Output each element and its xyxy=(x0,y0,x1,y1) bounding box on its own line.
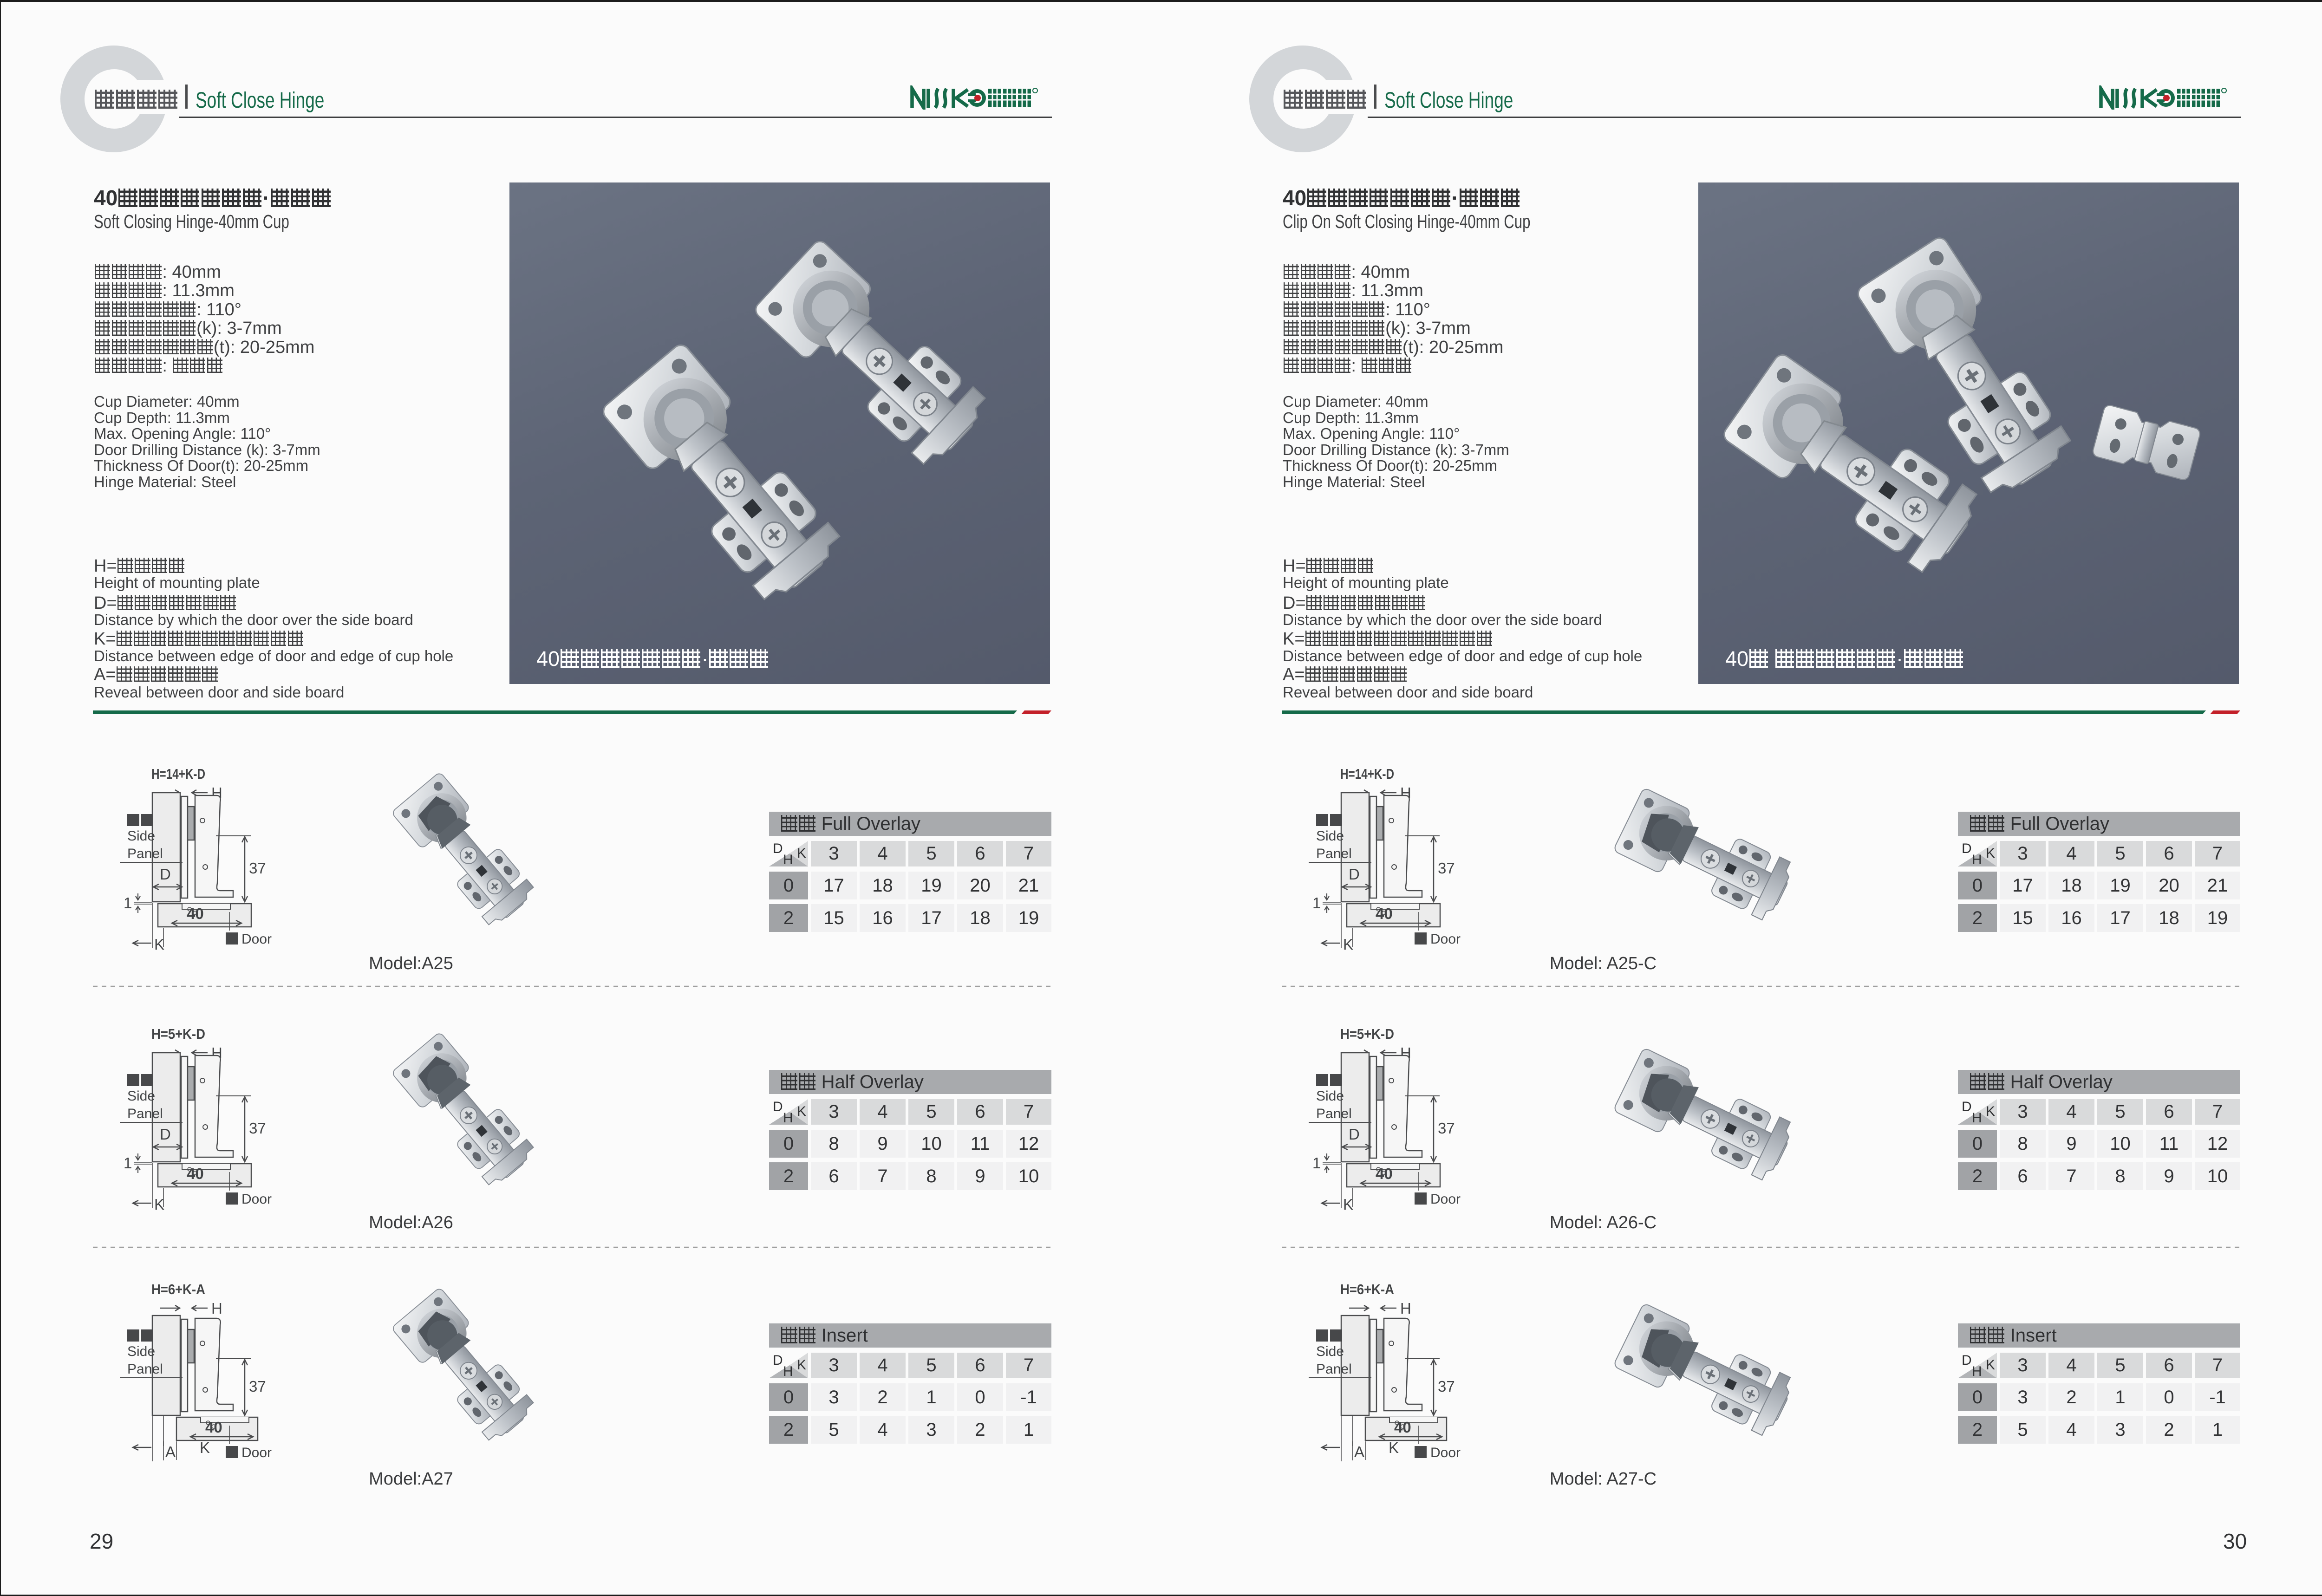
svg-text:D: D xyxy=(1962,1099,1972,1114)
svg-text:40: 40 xyxy=(205,1419,222,1436)
svg-text:H=14+K-D: H=14+K-D xyxy=(1340,766,1394,782)
svg-text:D: D xyxy=(1349,1126,1360,1143)
svg-text:Side: Side xyxy=(1316,828,1344,844)
svg-text:40: 40 xyxy=(1394,1419,1411,1436)
svg-text:Door: Door xyxy=(241,1192,272,1207)
svg-text:D: D xyxy=(773,1353,783,1368)
svg-text:37: 37 xyxy=(1438,1120,1455,1137)
svg-text:Panel: Panel xyxy=(127,1361,163,1377)
svg-text:Panel: Panel xyxy=(1316,1106,1352,1121)
svg-text:H: H xyxy=(1972,1110,1982,1125)
svg-text:H=6+K-A: H=6+K-A xyxy=(1340,1281,1394,1297)
svg-text:Panel: Panel xyxy=(1316,846,1352,861)
svg-text:H: H xyxy=(1400,1300,1411,1317)
svg-text:Panel: Panel xyxy=(1316,1361,1352,1377)
svg-text:H=6+K-A: H=6+K-A xyxy=(151,1281,205,1297)
svg-text:K: K xyxy=(1986,1104,1995,1119)
svg-text:H=5+K-D: H=5+K-D xyxy=(151,1026,205,1042)
svg-text:Door: Door xyxy=(241,932,272,947)
svg-text:Side: Side xyxy=(1316,1088,1344,1104)
svg-text:1: 1 xyxy=(124,894,132,912)
svg-text:40: 40 xyxy=(187,905,204,922)
svg-text:40: 40 xyxy=(1376,905,1393,922)
svg-text:Door: Door xyxy=(1430,1192,1461,1207)
svg-text:Door: Door xyxy=(1430,1445,1461,1460)
svg-text:37: 37 xyxy=(249,1120,266,1137)
svg-text:K: K xyxy=(1986,846,1995,861)
svg-text:D: D xyxy=(1962,1353,1972,1368)
svg-text:37: 37 xyxy=(1438,860,1455,877)
svg-text:H: H xyxy=(1972,852,1982,866)
svg-text:H: H xyxy=(783,852,793,866)
svg-text:K: K xyxy=(1986,1357,1995,1373)
svg-text:H: H xyxy=(783,1110,793,1125)
svg-text:Side: Side xyxy=(127,828,155,844)
svg-text:40: 40 xyxy=(1376,1165,1393,1182)
svg-text:40: 40 xyxy=(187,1165,204,1182)
svg-text:37: 37 xyxy=(249,1378,266,1395)
svg-text:37: 37 xyxy=(249,860,266,877)
svg-text:H=14+K-D: H=14+K-D xyxy=(151,766,205,782)
svg-text:Panel: Panel xyxy=(127,846,163,861)
svg-text:A: A xyxy=(165,1443,176,1460)
svg-text:Panel: Panel xyxy=(127,1106,163,1121)
svg-text:K: K xyxy=(154,936,164,953)
svg-text:A: A xyxy=(1354,1443,1364,1460)
svg-text:D: D xyxy=(773,841,783,856)
svg-text:H: H xyxy=(1972,1364,1982,1378)
svg-text:H: H xyxy=(783,1364,793,1378)
svg-text:K: K xyxy=(797,846,806,861)
svg-text:1: 1 xyxy=(1312,1154,1321,1172)
svg-text:Side: Side xyxy=(127,1344,155,1359)
svg-text:K: K xyxy=(797,1104,806,1119)
svg-text:Door: Door xyxy=(1430,932,1461,947)
svg-text:K: K xyxy=(154,1196,164,1213)
svg-text:37: 37 xyxy=(1438,1378,1455,1395)
svg-text:1: 1 xyxy=(124,1154,132,1172)
svg-text:H: H xyxy=(211,1300,222,1317)
svg-text:D: D xyxy=(160,1126,171,1143)
svg-text:Door: Door xyxy=(241,1445,272,1460)
svg-text:K: K xyxy=(797,1357,806,1373)
svg-text:K: K xyxy=(200,1439,210,1456)
svg-text:1: 1 xyxy=(1312,894,1321,912)
svg-text:H=5+K-D: H=5+K-D xyxy=(1340,1026,1394,1042)
svg-text:K: K xyxy=(1343,936,1353,953)
svg-text:K: K xyxy=(1343,1196,1353,1213)
svg-text:D: D xyxy=(1349,866,1360,883)
svg-text:D: D xyxy=(773,1099,783,1114)
svg-text:K: K xyxy=(1389,1439,1399,1456)
svg-text:D: D xyxy=(160,866,171,883)
svg-text:D: D xyxy=(1962,841,1972,856)
svg-text:Side: Side xyxy=(1316,1344,1344,1359)
svg-text:Side: Side xyxy=(127,1088,155,1104)
